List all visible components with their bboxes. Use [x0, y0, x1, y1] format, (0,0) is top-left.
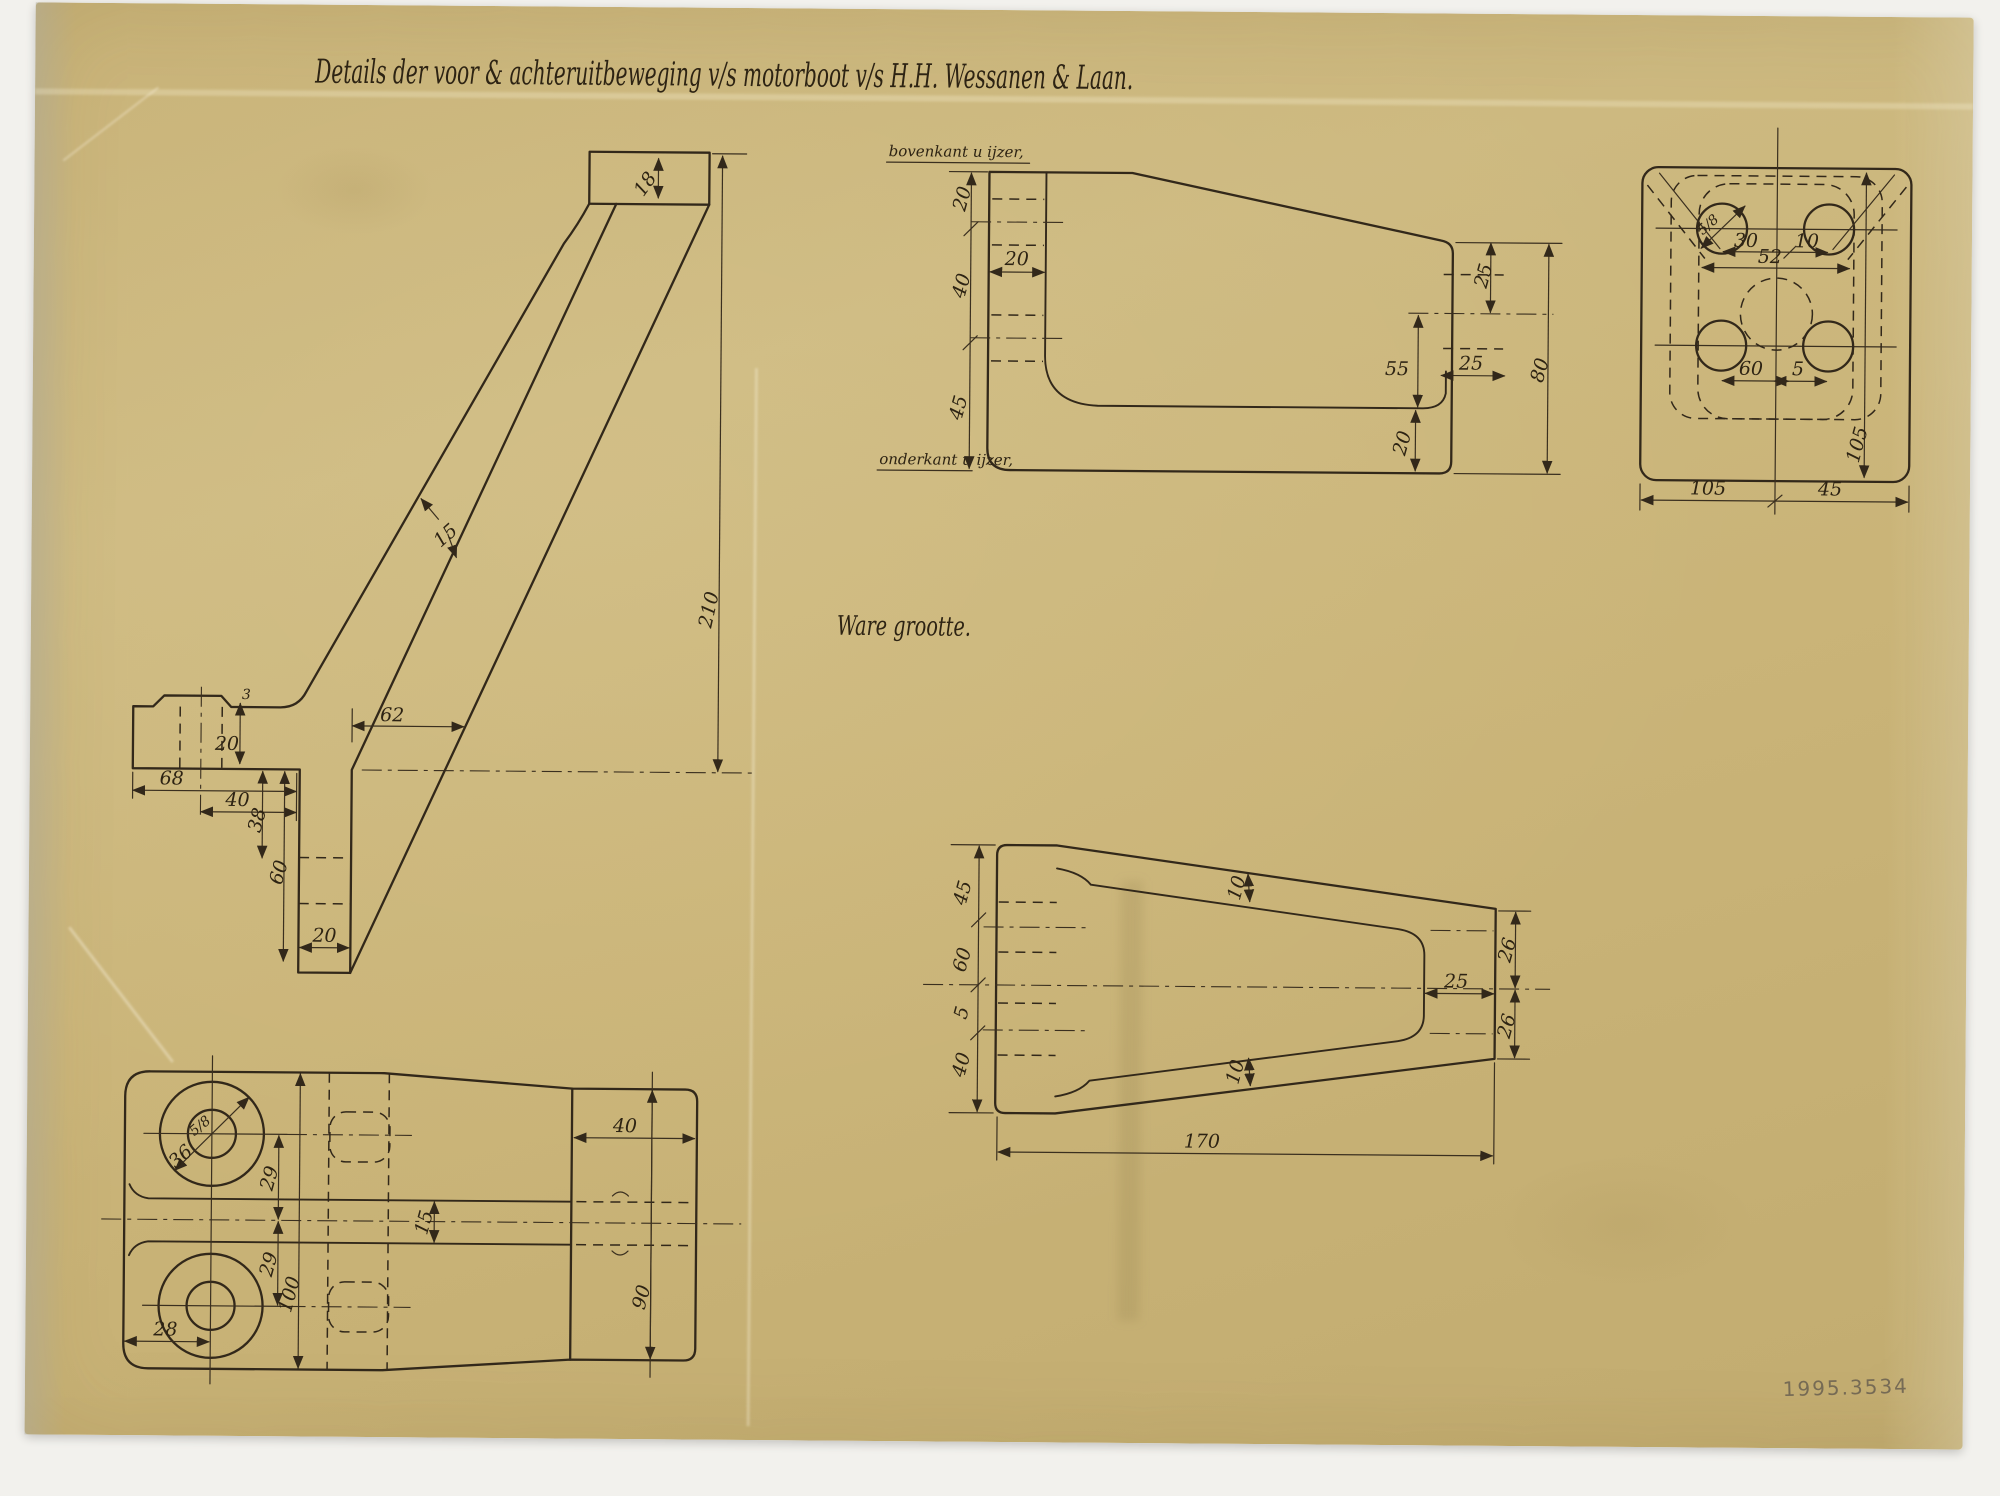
dim-45: 45 — [949, 878, 977, 908]
view-base-side-elevation: bovenkant u ijzer, onderkant u ijzer, 20… — [877, 142, 1563, 475]
dim-line — [969, 173, 971, 469]
label-onderkant: onderkant u ijzer, — [879, 450, 1013, 469]
drawing-sheet: Details der voor & achteruitbeweging v/s… — [0, 0, 2000, 1496]
dim-105-bottom: 105 — [1690, 477, 1726, 499]
notes: Details der voor & achteruitbeweging v/s… — [304, 52, 1919, 1403]
web-hidden — [576, 1245, 690, 1246]
label-bovenkant: bovenkant u ijzer, — [889, 142, 1024, 161]
block-centerline — [1408, 313, 1553, 314]
base-outline — [987, 172, 1453, 474]
dim-line — [1248, 1058, 1250, 1086]
dim-80: 80 — [1526, 356, 1554, 385]
centerline-vertical — [1775, 128, 1778, 514]
chamfer-edge — [1659, 173, 1721, 248]
dim-5: 5 — [1792, 358, 1804, 380]
dim-30: 30 — [1734, 230, 1758, 252]
dim-40: 40 — [224, 789, 249, 811]
hole-centerline-ext — [286, 1306, 411, 1307]
dim-55: 55 — [1385, 358, 1409, 380]
dim-20-width: 20 — [1004, 248, 1029, 270]
bracket-outline — [131, 200, 616, 975]
dim-line — [1418, 315, 1419, 407]
dim-100: 100 — [274, 1274, 305, 1315]
fillet-mark — [612, 1192, 628, 1196]
extension-line — [1494, 1063, 1495, 1164]
dim-20-flange: 20 — [1388, 429, 1416, 459]
dim-18: 18 — [629, 168, 661, 200]
label-underline — [877, 470, 972, 471]
dim-40: 40 — [947, 1050, 975, 1080]
dim-25: 25 — [1443, 970, 1468, 992]
dim-line — [124, 1341, 209, 1342]
web-edge — [129, 1184, 571, 1201]
label-underline — [887, 162, 1030, 163]
dim-25-top: 25 — [1470, 261, 1498, 291]
web-hidden — [576, 1202, 690, 1203]
dim-26-bottom: 26 — [1493, 1011, 1521, 1041]
dim-line — [1547, 244, 1549, 473]
dim-52: 52 — [1758, 246, 1782, 268]
dim-26-top: 26 — [1493, 935, 1521, 965]
bracket-outer-edge — [350, 202, 709, 976]
ink-linework: Details der voor & achteruitbeweging v/s… — [0, 0, 2000, 1496]
boss-hidden — [330, 1112, 390, 1162]
dim-line — [352, 726, 464, 727]
dim-170: 170 — [1184, 1130, 1220, 1152]
dim-45-bottom: 45 — [1817, 478, 1842, 500]
view-arm-plan: 45 60 5 40 10 10 25 26 26 170 — [922, 844, 1551, 1164]
extension-line — [1456, 243, 1562, 244]
hole-centerline — [971, 222, 1066, 223]
dim-line — [718, 156, 723, 772]
chamfer-hidden — [1647, 185, 1706, 258]
view-base-plan: 5/8 30 10 52 60 5 105 105 45 — [1640, 127, 1912, 515]
foot-outline — [123, 1071, 697, 1372]
dim-68: 68 — [160, 767, 184, 789]
hole-centerline — [983, 1030, 1090, 1031]
dim-60: 60 — [265, 858, 293, 887]
dim-62: 62 — [380, 704, 404, 726]
dim-line — [1441, 375, 1505, 376]
dim-40: 40 — [612, 1115, 637, 1137]
dim-60: 60 — [948, 945, 976, 974]
leader-arrow — [421, 498, 439, 519]
hole-centerline-ext — [287, 1134, 412, 1135]
hole-centerline — [970, 338, 1065, 339]
dim-45: 45 — [945, 393, 973, 423]
fillet-mark — [612, 1251, 628, 1255]
view-bracket-side-elevation: 18 210 15 62 3 20 68 40 38 60 20 — [131, 148, 756, 976]
dim-5: 5 — [950, 1004, 974, 1022]
hole-centerline — [984, 927, 1091, 928]
dim-105-side: 105 — [1842, 424, 1873, 465]
hole-centerline — [144, 1133, 287, 1134]
extension-line — [1454, 474, 1560, 475]
hole-centerline — [143, 1305, 286, 1306]
base-reference-line — [362, 770, 752, 773]
end-block-edge — [570, 1089, 572, 1360]
channel-hidden — [387, 1073, 389, 1370]
dim-3: 3 — [242, 687, 251, 703]
dim-line — [574, 1138, 695, 1139]
inventory-stamp: 1995.3534 — [1782, 1374, 1909, 1401]
view-foot-plan: 5/8 36 29 29 15 100 28 40 90 — [100, 1055, 743, 1388]
chamfer-hidden — [1848, 187, 1907, 260]
dim-line — [998, 1152, 1493, 1156]
dim-line — [977, 846, 979, 1112]
dim-28: 28 — [152, 1318, 177, 1340]
dim-line — [1425, 993, 1494, 994]
dim-25-width: 25 — [1458, 353, 1483, 375]
dim-20-leg: 20 — [311, 925, 336, 947]
dim-20-boss: 20 — [214, 733, 239, 755]
dim-10-top: 10 — [1223, 873, 1251, 902]
chamfer-edge — [1833, 175, 1895, 250]
dim-line — [133, 790, 297, 791]
dim-60: 60 — [1739, 358, 1763, 380]
dim-line — [650, 1090, 652, 1359]
scale-note: Ware grootte. — [837, 611, 971, 643]
dim-36: 36 — [164, 1140, 197, 1173]
bolt-centerline — [200, 687, 201, 818]
dim-10: 10 — [1795, 230, 1819, 252]
drawing-title: Details der voor & achteruitbeweging v/s… — [315, 52, 1134, 97]
